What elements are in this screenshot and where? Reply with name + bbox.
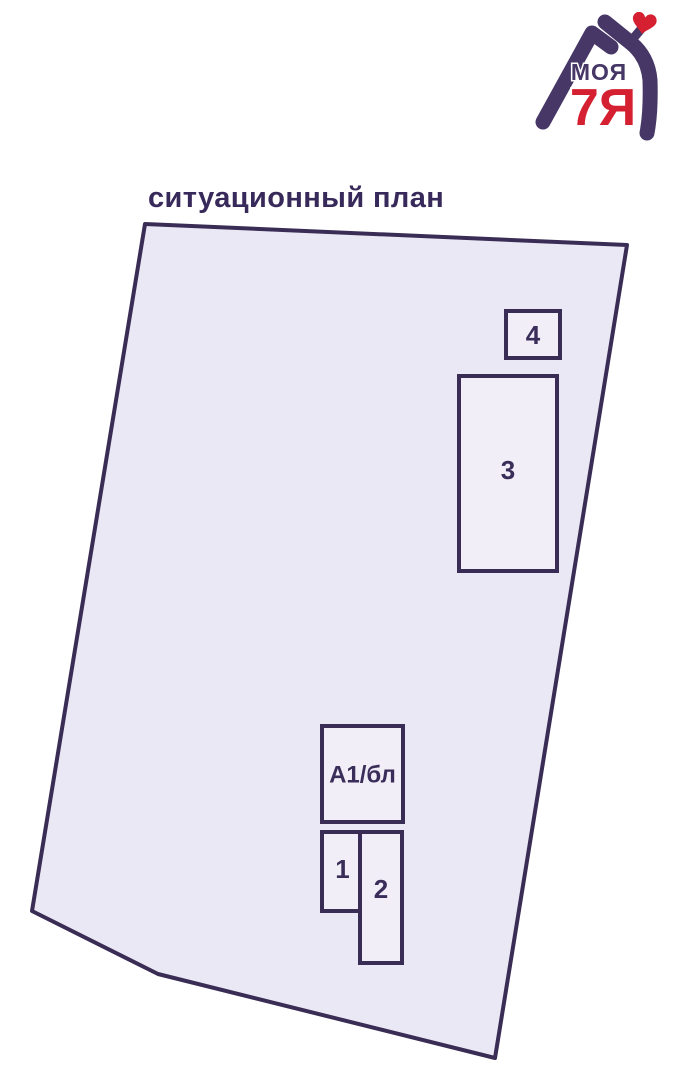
building-label-4: 4: [526, 320, 541, 350]
building-label-2: 2: [374, 874, 388, 904]
building-label-1: 1: [335, 854, 349, 884]
page: 43А1/бл12 ситуационный план МОЯ 7Я: [0, 0, 694, 1080]
building-label-3: 3: [501, 455, 515, 485]
site-plan: 43А1/бл12: [0, 0, 694, 1080]
brand-logo: МОЯ 7Я: [529, 12, 689, 146]
page-title: ситуационный план: [148, 182, 444, 215]
building-label-a1: А1/бл: [329, 762, 396, 789]
brand-text-bottom: 7Я: [570, 79, 636, 137]
